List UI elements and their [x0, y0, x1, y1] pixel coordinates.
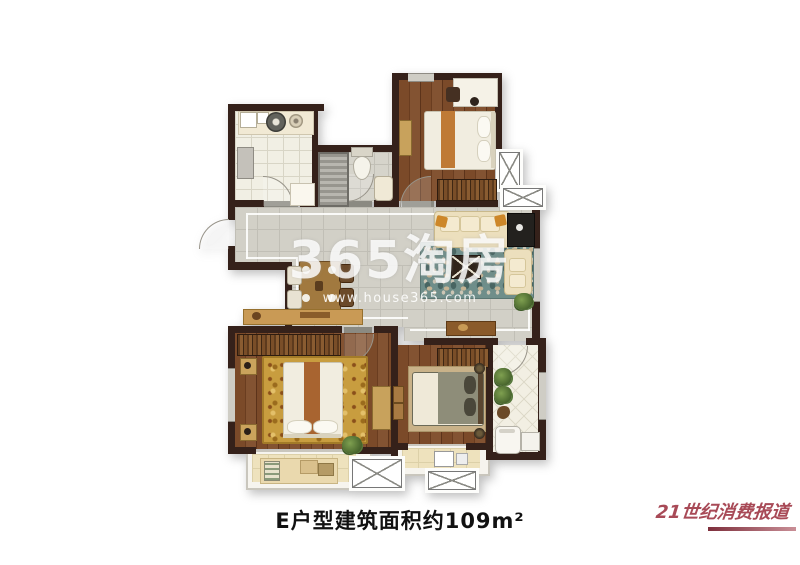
headboard: [491, 111, 495, 168]
desk-chair: [446, 87, 460, 102]
plate-icon: [328, 294, 336, 302]
wall: [374, 200, 398, 207]
closet-door: [393, 403, 404, 420]
bathroom1-sink: [374, 176, 393, 201]
window: [539, 372, 546, 420]
dining-chair: [339, 288, 354, 307]
side-cabinet: [399, 120, 412, 156]
balcony-shelf-icon: [434, 451, 454, 467]
bay-window-icon: [499, 152, 520, 189]
wall: [436, 200, 498, 207]
shower-area: [318, 152, 349, 207]
dining-chair: [287, 266, 302, 285]
balcony-box: [456, 453, 468, 465]
throw-pillow: [494, 214, 507, 227]
coffee-table: [451, 255, 481, 279]
armchair-pillow: [509, 258, 526, 272]
lamp-icon: [244, 428, 251, 435]
floor-trim: [246, 257, 298, 259]
tv-speaker-icon: [516, 224, 523, 231]
headboard: [283, 434, 341, 438]
pillow: [287, 420, 312, 434]
bath-cabinet: [521, 432, 540, 451]
lamp-icon: [474, 428, 485, 439]
table-centerpiece: [315, 281, 323, 291]
console-decor: [252, 312, 261, 320]
closet-door: [393, 386, 404, 403]
plate-icon: [328, 266, 336, 274]
armchair: [504, 249, 532, 295]
wall: [228, 326, 342, 333]
plate-icon: [302, 294, 310, 302]
washing-machine-lid: [499, 429, 515, 433]
publisher-logo-text: 21世纪消费报道: [655, 498, 800, 524]
pillow: [477, 116, 491, 138]
wall: [234, 200, 264, 207]
window: [228, 368, 235, 422]
dining-chair: [287, 290, 302, 309]
wardrobe: [237, 334, 341, 356]
wall: [392, 73, 399, 207]
pillow: [464, 398, 476, 416]
armchair-pillow: [509, 274, 526, 288]
stove-burner-small-icon: [289, 114, 303, 128]
lamp-icon: [474, 363, 485, 374]
lamp-icon: [244, 362, 251, 369]
bed-runner: [441, 111, 455, 168]
wall: [424, 338, 490, 345]
bench-pillow: [318, 463, 334, 476]
wall: [228, 104, 324, 111]
console-decor: [458, 324, 468, 331]
bay-window-icon: [503, 188, 543, 207]
publisher-logo-bar: [708, 527, 796, 531]
dining-chair: [339, 264, 354, 283]
console-decor: [300, 312, 330, 318]
desk-lamp-icon: [470, 97, 479, 106]
pillow: [464, 376, 476, 394]
door-threshold: [348, 201, 372, 207]
window: [533, 248, 540, 302]
bay-window-icon: [352, 459, 402, 488]
sofa-cushion: [460, 216, 480, 232]
fridge: [237, 147, 254, 179]
pillow: [313, 420, 338, 434]
tv-console: [446, 321, 496, 336]
wall: [228, 262, 292, 270]
headboard: [478, 372, 483, 424]
bay-window-icon: [428, 471, 476, 490]
dresser: [372, 386, 391, 430]
window: [408, 73, 434, 82]
wall: [466, 443, 492, 450]
wall: [398, 443, 408, 450]
publisher-logo: 21世纪消费报道: [656, 498, 798, 531]
door-threshold: [344, 327, 372, 333]
entry-door-arc: [199, 219, 229, 249]
kitchen-sink: [240, 112, 257, 128]
kitchen-cabinet: [290, 183, 315, 206]
pillow: [477, 140, 491, 162]
bench-ladder: [264, 461, 280, 481]
apartment-floorplan: [0, 0, 800, 565]
stove-burner-icon: [266, 112, 286, 132]
wall: [228, 447, 256, 454]
plate-icon: [302, 266, 310, 274]
wardrobe: [437, 179, 497, 201]
floorplan-image: 365淘房 www.house365.com E户型建筑面积约109m² 21世…: [0, 0, 800, 565]
bench-pillow: [300, 460, 318, 474]
wall: [486, 338, 498, 345]
floor-trim: [246, 215, 248, 259]
